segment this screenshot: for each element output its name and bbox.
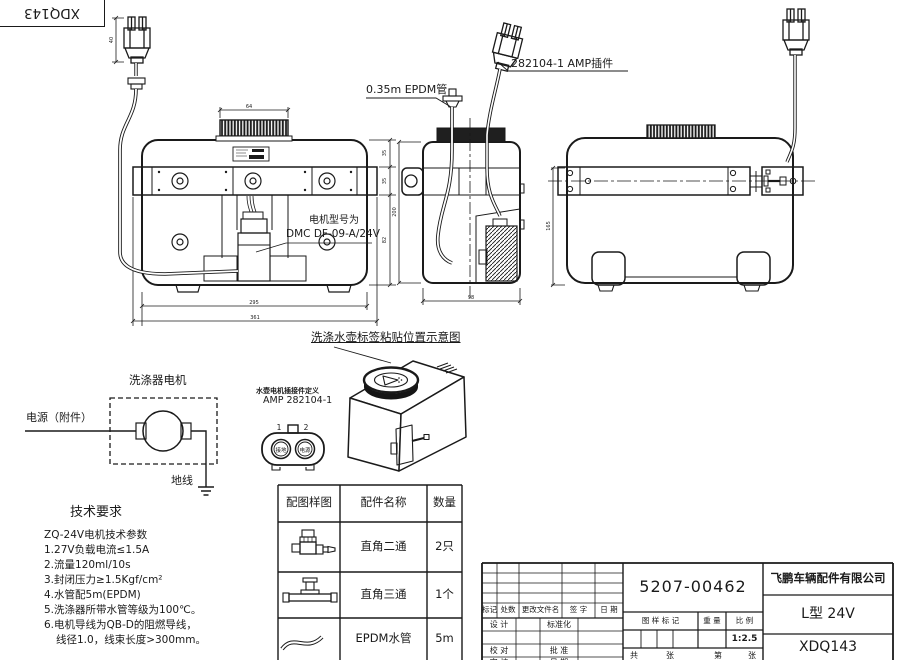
mounting-ear — [402, 168, 423, 195]
header-scale: 比 例 — [726, 617, 763, 626]
label-note-leader — [334, 347, 391, 363]
tech-line: 4.水管配5m(EPDM) — [44, 589, 141, 601]
wiring-ground-label: 地线 — [171, 475, 193, 488]
rev-col-sign: 签 字 — [562, 606, 595, 615]
part-number: 5207-00462 — [623, 578, 763, 596]
parts-header-name: 配件名称 — [340, 496, 427, 509]
sig-check: 校 对 — [482, 646, 516, 655]
parts-header-sample: 配图样图 — [278, 496, 340, 509]
sig-standardize: 标准化 — [540, 620, 578, 629]
parts-header-qty: 数量 — [427, 496, 462, 509]
rev-col-mark: 标记 — [482, 606, 497, 615]
motor-model-value: DMC DF-09-A/24V — [286, 228, 380, 240]
pump-side — [479, 219, 517, 281]
model-designation: L型 24V — [763, 606, 893, 622]
harness-right — [783, 9, 809, 162]
amp-plug-icon — [783, 9, 809, 55]
hose-icon — [282, 637, 322, 649]
side-view — [397, 89, 524, 305]
filler-cap-rear — [643, 125, 719, 138]
dim-cap-width: 64 — [246, 104, 252, 110]
pin-2-label: 电源 — [299, 446, 311, 454]
tech-line: ZQ-24V电机技术参数 — [44, 529, 147, 541]
tech-line: 1.27V负载电流≤1.5A — [44, 544, 149, 556]
parts-row-name: EPDM水管 — [340, 632, 427, 645]
connector-pinout — [262, 425, 324, 470]
dim-front-width-inner: 295 — [249, 300, 259, 306]
sheet-page-label: 第 — [714, 651, 722, 660]
sheet-total-label: 共 — [630, 651, 638, 660]
parts-row-qty: 1个 — [427, 588, 462, 601]
epdm-callout-leader — [366, 98, 451, 107]
parts-row-qty: 2只 — [427, 540, 462, 553]
dim-front-h-bottom: 82 — [382, 237, 388, 243]
corner-stamp: XDQ143 — [0, 0, 105, 27]
dim-front-width-outer: 361 — [250, 315, 260, 321]
connector-model: AMP 282104-1 — [263, 396, 332, 407]
motor-symbol — [143, 411, 183, 451]
tech-line: 3.封闭压力≥1.5Kgf/cm² — [44, 574, 163, 586]
rev-col-file: 更改文件名 — [519, 606, 562, 615]
sig-approve: 批 准 — [540, 646, 578, 655]
rev-col-date: 日 期 — [595, 606, 623, 615]
rev-col-count: 处数 — [497, 606, 519, 615]
sheet-page-unit: 张 — [748, 651, 756, 660]
parts-row-name: 直角二通 — [340, 540, 427, 553]
tech-line: 5.洗涤器所带水管等级为100℃。 — [44, 604, 201, 616]
nameplate — [233, 147, 269, 161]
dim-plug-height: 40 — [109, 37, 115, 43]
dim-side-height: 200 — [392, 207, 398, 217]
dim-side-width: 98 — [468, 295, 474, 301]
hose-nozzle-icon — [128, 78, 145, 89]
motor-model-leader — [256, 243, 372, 252]
header-drawing-mark: 图 样 标 记 — [623, 617, 698, 626]
dim-front-h-top: 35 — [382, 150, 388, 156]
tech-requirements-title: 技术要求 — [70, 506, 122, 521]
motor-model-label: 电机型号为 — [309, 215, 359, 227]
tee-fitting-icon — [283, 578, 337, 602]
tech-line: 线径1.0，线束长度>300mm。 — [56, 634, 206, 646]
sig-design: 设 计 — [482, 620, 516, 629]
sheet-total-unit: 张 — [666, 651, 674, 660]
pin-1-label: 接地 — [275, 446, 287, 454]
label-position-note: 洗涤水壶标签粘贴位置示意图 — [311, 331, 461, 344]
tech-line: 6.电机导线为QB-D的阻燃导线， — [44, 619, 197, 631]
rear-feet — [592, 252, 770, 291]
callout-epdm-tube: 0.35m EPDM管 — [366, 84, 447, 97]
wiring-title: 洗涤器电机 — [129, 374, 187, 387]
pin-2-number: 2 — [304, 423, 309, 432]
filler-cap-front — [216, 120, 292, 141]
amp-plug-icon — [124, 17, 150, 63]
parts-row-name: 直角三通 — [340, 588, 427, 601]
iso-cap — [364, 368, 418, 400]
wiring-power-label: 电源（附件） — [26, 412, 92, 425]
elbow-fitting-icon — [292, 530, 335, 554]
ground-icon — [198, 487, 214, 495]
drawing-number: XDQ143 — [763, 639, 893, 655]
scale-value: 1:2.5 — [726, 634, 763, 644]
isometric-view — [334, 347, 466, 471]
callout-amp-plug: 282104-1 AMP插件 — [511, 58, 613, 71]
drawing-sheet: 64 295 361 35 35 82 98 200 165 40 1 2 接地… — [0, 0, 900, 660]
connector-note: 水壶电机插接件定义 — [256, 387, 319, 395]
cap-dimension — [218, 107, 290, 118]
header-weight: 重 量 — [698, 617, 726, 626]
dim-rear-height: 165 — [546, 221, 552, 231]
tech-line: 2.流量120ml/10s — [44, 559, 131, 571]
company-name: 飞鹏车辆配件有限公司 — [763, 572, 893, 585]
parts-row-qty: 5m — [427, 632, 462, 645]
pin-1-number: 1 — [277, 423, 282, 432]
corner-stamp-text: XDQ143 — [0, 0, 104, 26]
filler-cap-side — [437, 128, 505, 142]
dim-front-h-mid: 35 — [382, 178, 388, 184]
rear-view — [548, 125, 818, 291]
